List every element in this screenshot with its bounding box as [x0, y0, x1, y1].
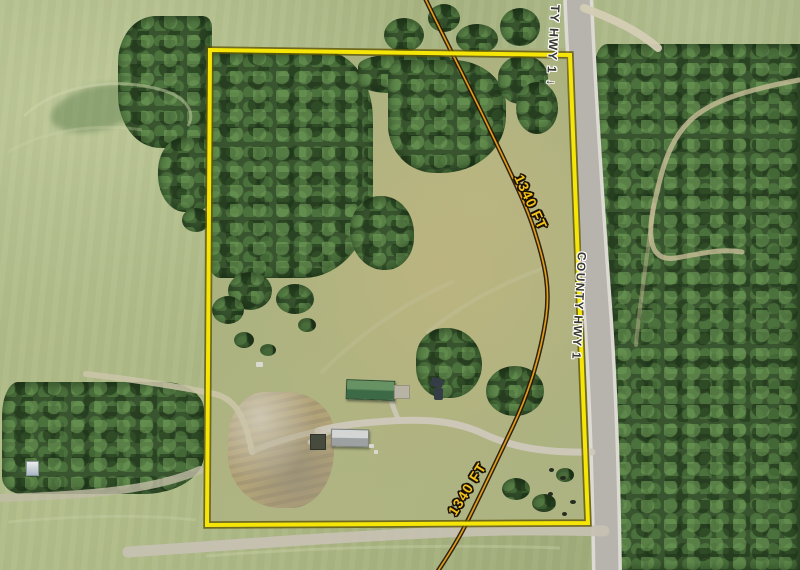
house-porch: [394, 385, 410, 399]
arrow-down-icon: ↓: [544, 79, 558, 86]
parcel-boundary-casing: [207, 50, 588, 525]
animal-dot: [560, 476, 566, 480]
yard-object: [374, 450, 378, 454]
forest-trail: [651, 80, 799, 258]
dark-shed: [310, 434, 326, 450]
shed-roof: [331, 429, 369, 448]
field-track: [24, 84, 191, 126]
house-roof: [346, 379, 396, 401]
field-track: [8, 127, 142, 152]
animal-dot: [548, 492, 553, 496]
animal-dot: [570, 500, 576, 504]
map-line-overlay: [0, 0, 800, 570]
forest-trail-faint: [636, 205, 654, 345]
animal-dot: [549, 468, 554, 472]
parcel-boundary: [207, 50, 588, 525]
white-shed: [26, 461, 39, 476]
yard-object: [369, 444, 374, 448]
field-track: [8, 516, 196, 522]
west-field-trail: [86, 374, 252, 452]
meadow-track: [428, 268, 544, 332]
aerial-map-canvas[interactable]: TY HWY 1 ↓ COUNTY HWY 1 1340 FT 1340 FT: [0, 0, 800, 570]
animal-dot: [562, 512, 567, 516]
vehicle-trailer: [434, 388, 443, 400]
yard-object: [256, 362, 263, 367]
